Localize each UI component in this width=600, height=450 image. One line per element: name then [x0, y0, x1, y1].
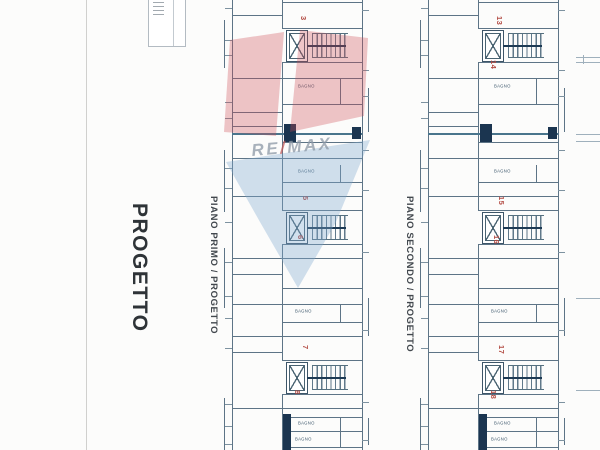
bathroom-label: BAGNO: [494, 169, 511, 174]
wall-line: [428, 78, 558, 79]
wall-line: [420, 248, 421, 308]
dark-wall-segment: [283, 414, 291, 450]
window-tick: [362, 10, 369, 11]
bathroom-label: BAGNO: [295, 437, 312, 442]
edge-fragment-line: [583, 55, 584, 64]
window-tick: [421, 55, 428, 56]
wall-line: [478, 417, 558, 418]
unit-number: 3: [299, 16, 308, 21]
wall-line: [232, 304, 362, 305]
wall-line: [428, 274, 478, 275]
wall-line: [478, 62, 479, 210]
window-tick: [558, 150, 565, 151]
window-tick: [421, 222, 428, 223]
wall-line: [340, 78, 341, 104]
wall-line: [232, 158, 362, 159]
unit-number: 6: [296, 235, 305, 240]
bathroom-label: BAGNO: [494, 421, 511, 426]
window-tick: [225, 318, 232, 319]
stair-run-icon: [508, 365, 544, 390]
unit-number: 15: [497, 196, 506, 205]
wall-line: [478, 2, 558, 3]
floor-plan-label: PIANO PRIMO / PROGETTO: [208, 196, 219, 334]
wall-line: [478, 322, 558, 323]
unit-number: 14: [489, 60, 498, 69]
wall-line: [536, 78, 537, 104]
wall-line: [224, 150, 225, 212]
unit-number: 8: [293, 390, 302, 395]
wall-line: [224, 20, 225, 68]
unit-number: 18: [489, 390, 498, 399]
wall-line: [478, 244, 558, 245]
dark-wall-segment: [479, 414, 487, 450]
edge-fragment-line: [576, 134, 600, 135]
window-tick: [558, 10, 565, 11]
wall-line: [428, 258, 558, 259]
wall-line: [478, 28, 558, 29]
window-tick: [421, 318, 428, 319]
window-tick: [421, 426, 428, 427]
title-block-divider: [173, 0, 174, 46]
elevator-shaft-icon: [482, 30, 504, 62]
utility-wall-line: [232, 133, 362, 135]
wall-line: [478, 182, 558, 183]
window-tick: [362, 252, 369, 253]
wall-line: [282, 2, 362, 3]
edge-fragment-line: [576, 141, 600, 142]
window-tick: [362, 330, 369, 331]
stair-run-icon: [312, 365, 348, 390]
wall-line: [478, 210, 558, 211]
project-side-label: PROGETTO: [127, 203, 151, 332]
window-tick: [225, 102, 232, 103]
window-tick: [558, 190, 565, 191]
window-tick: [362, 190, 369, 191]
wall-line: [428, 126, 478, 127]
window-tick: [558, 70, 565, 71]
wall-line: [282, 62, 362, 63]
wall-line: [428, 336, 558, 337]
window-tick: [558, 440, 565, 441]
stair-run-icon: [312, 33, 348, 58]
window-tick: [558, 330, 565, 331]
window-tick: [421, 444, 428, 445]
wall-line: [478, 104, 558, 105]
window-tick: [362, 402, 369, 403]
wall-line: [478, 142, 558, 143]
window-tick: [225, 444, 232, 445]
window-tick: [421, 8, 428, 9]
floor-plan: BAGNOBAGNOBAGNOBAGNOBAGNO131415161718PIA…: [418, 0, 570, 450]
dark-wall-segment: [548, 127, 557, 139]
wall-line: [340, 417, 341, 447]
window-tick: [421, 296, 428, 297]
window-tick: [225, 348, 232, 349]
wall-line: [478, 447, 558, 448]
bathroom-label: BAGNO: [494, 84, 511, 89]
wall-line: [340, 304, 341, 322]
bathroom-label: BAGNO: [298, 421, 315, 426]
wall-line: [232, 196, 362, 197]
wall-line: [282, 62, 283, 210]
window-tick: [421, 118, 428, 119]
dark-wall-segment: [480, 124, 492, 142]
wall-line: [224, 398, 225, 450]
bathroom-label: BAGNO: [295, 309, 312, 314]
window-tick: [225, 55, 232, 56]
wall-line: [232, 0, 233, 450]
window-tick: [421, 348, 428, 349]
wall-line: [428, 352, 478, 353]
wall-line: [282, 182, 362, 183]
wall-line: [478, 288, 558, 289]
wall-line: [428, 196, 558, 197]
wall-line: [282, 447, 362, 448]
window-tick: [362, 150, 369, 151]
window-tick: [421, 40, 428, 41]
window-tick: [225, 8, 232, 9]
wall-line: [428, 112, 478, 113]
bathroom-label: BAGNO: [298, 169, 315, 174]
edge-fragment-line: [576, 298, 600, 299]
window-tick: [225, 118, 232, 119]
window-tick: [225, 188, 232, 189]
wall-line: [232, 126, 282, 127]
wall-line: [428, 408, 558, 409]
wall-line: [536, 165, 537, 182]
window-tick: [362, 70, 369, 71]
wall-line: [420, 150, 421, 212]
wall-line: [232, 112, 282, 113]
window-tick: [225, 168, 232, 169]
dark-wall-segment: [284, 124, 296, 142]
wall-line: [282, 244, 283, 360]
wall-line: [478, 360, 558, 361]
window-tick: [225, 296, 232, 297]
edge-fragment-line: [576, 57, 600, 58]
dark-wall-segment: [352, 127, 361, 139]
wall-line: [420, 20, 421, 68]
bathroom-label: BAGNO: [491, 309, 508, 314]
wall-line: [282, 104, 362, 105]
unit-number: 13: [495, 16, 504, 25]
window-tick: [421, 102, 428, 103]
wall-line: [282, 431, 362, 432]
wall-line: [478, 0, 479, 28]
wall-line: [428, 304, 558, 305]
bathroom-label: BAGNO: [491, 437, 508, 442]
wall-line: [428, 158, 558, 159]
wall-line: [282, 28, 362, 29]
window-tick: [421, 188, 428, 189]
unit-number: 5: [301, 196, 310, 201]
window-tick: [225, 426, 232, 427]
scanned-plan-sheet: PROGETTO BAGNOBAGNOBAGNOBAGNOBAGNO35678P…: [0, 0, 600, 450]
stair-run-icon: [508, 33, 544, 58]
wall-line: [224, 248, 225, 308]
wall-line: [282, 288, 362, 289]
stair-run-icon: [508, 215, 544, 240]
wall-line: [478, 244, 479, 360]
wall-line: [282, 417, 362, 418]
window-tick: [558, 252, 565, 253]
wall-line: [232, 15, 282, 16]
wall-line: [536, 417, 537, 447]
stair-run-icon: [312, 215, 348, 240]
unit-number: 16: [492, 235, 501, 244]
wall-line: [564, 88, 565, 132]
wall-line: [282, 210, 362, 211]
wall-line: [232, 78, 362, 79]
wall-line: [428, 0, 429, 450]
sheet-fold-line: [86, 0, 87, 450]
wall-line: [340, 165, 341, 182]
window-tick: [558, 96, 565, 97]
wall-line: [428, 15, 478, 16]
edge-fragment-line: [576, 62, 600, 63]
window-tick: [225, 262, 232, 263]
unit-number: 7: [301, 345, 310, 350]
window-tick: [225, 404, 232, 405]
window-tick: [421, 262, 428, 263]
title-block-micro-text: [153, 2, 164, 17]
wall-line: [282, 360, 362, 361]
window-tick: [362, 440, 369, 441]
floor-plan-label: PIANO SECONDO / PROGETTO: [404, 196, 415, 352]
wall-line: [478, 431, 558, 432]
wall-line: [232, 258, 362, 259]
wall-line: [558, 0, 559, 450]
wall-line: [368, 88, 369, 132]
wall-line: [232, 352, 282, 353]
window-tick: [225, 40, 232, 41]
wall-line: [232, 408, 362, 409]
wall-line: [362, 0, 363, 450]
wall-line: [282, 142, 362, 143]
window-tick: [362, 96, 369, 97]
edge-fragment-line: [576, 390, 600, 391]
wall-line: [232, 274, 282, 275]
window-tick: [421, 168, 428, 169]
window-tick: [558, 402, 565, 403]
window-tick: [421, 404, 428, 405]
unit-number: 17: [497, 345, 506, 354]
window-tick: [225, 222, 232, 223]
title-block: [148, 0, 186, 47]
wall-line: [232, 336, 362, 337]
bathroom-label: BAGNO: [298, 84, 315, 89]
wall-line: [282, 322, 362, 323]
floor-plan: BAGNOBAGNOBAGNOBAGNOBAGNO35678PIANO PRIM…: [222, 0, 374, 450]
elevator-shaft-icon: [286, 30, 308, 62]
wall-line: [282, 244, 362, 245]
utility-wall-line: [428, 133, 558, 135]
wall-line: [420, 398, 421, 450]
wall-line: [536, 304, 537, 322]
wall-line: [282, 0, 283, 28]
